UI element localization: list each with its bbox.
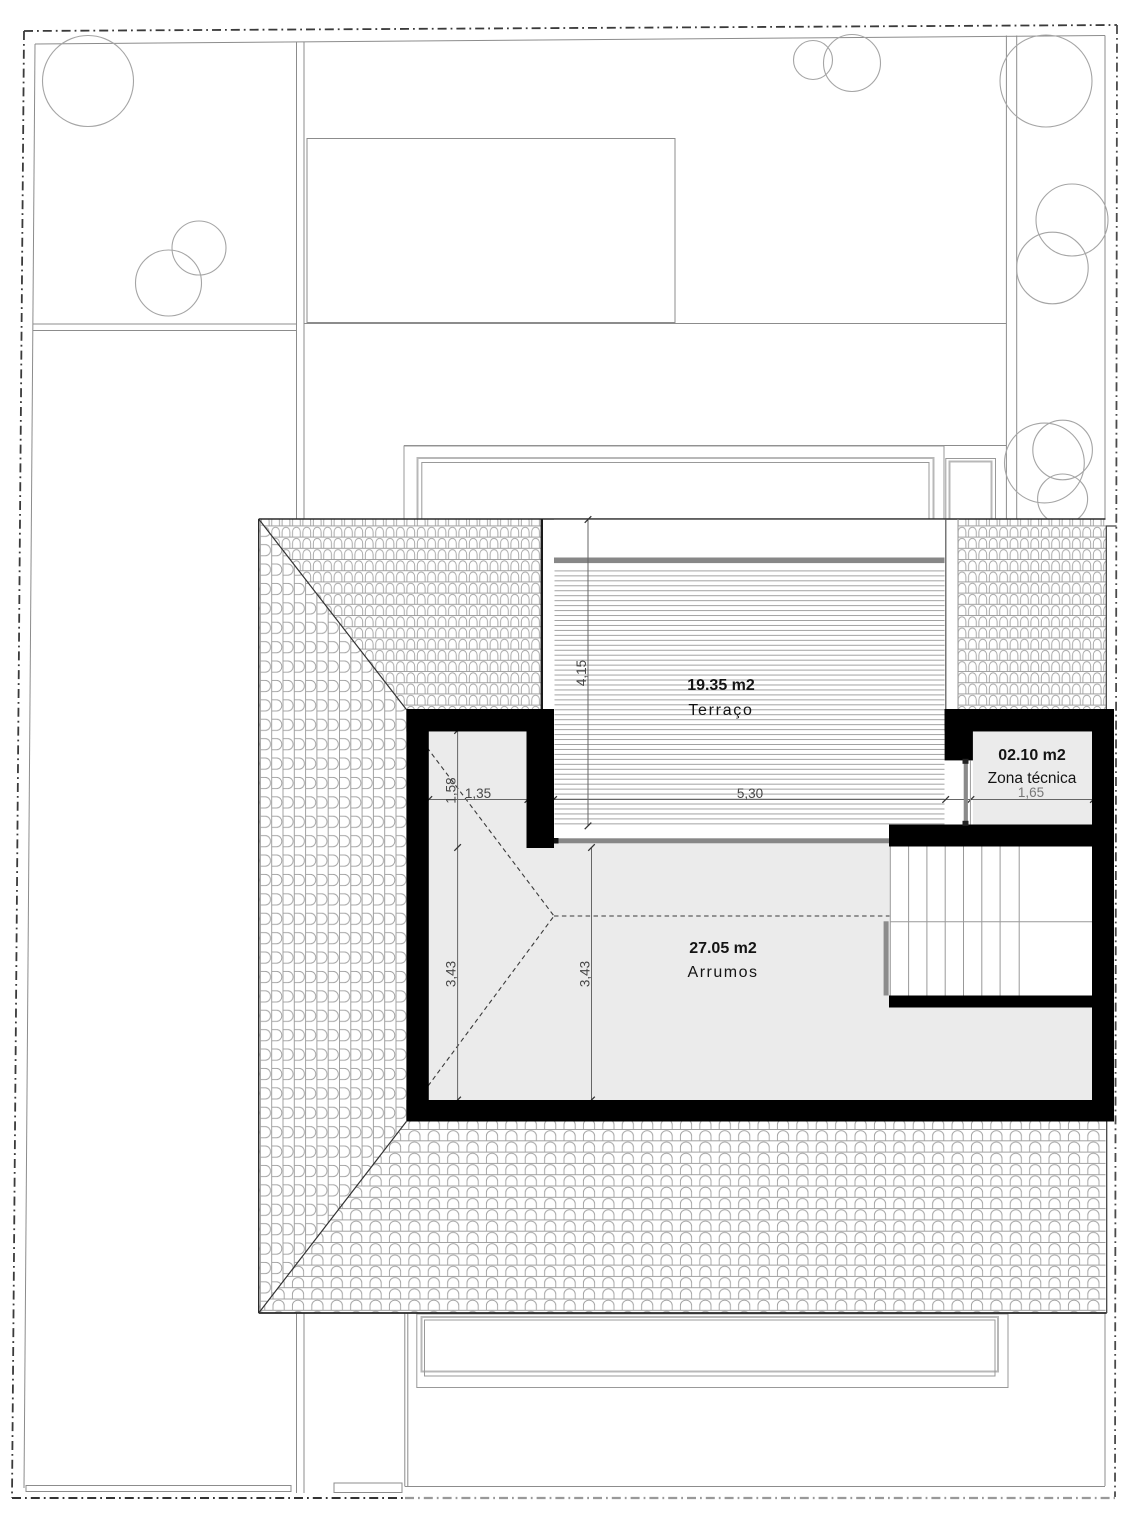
svg-text:4,15: 4,15 (574, 660, 589, 686)
svg-text:3,43: 3,43 (444, 961, 459, 987)
svg-text:19.35 m2: 19.35 m2 (687, 677, 755, 694)
svg-text:3,43: 3,43 (578, 961, 593, 987)
svg-text:1,35: 1,35 (465, 786, 491, 801)
svg-text:1,65: 1,65 (1018, 785, 1044, 800)
svg-text:5,30: 5,30 (737, 786, 763, 801)
svg-text:1,58: 1,58 (444, 777, 459, 803)
svg-text:27.05 m2: 27.05 m2 (689, 940, 757, 957)
svg-text:Arrumos: Arrumos (688, 964, 759, 981)
svg-text:Terraço: Terraço (688, 702, 753, 719)
svg-text:02.10 m2: 02.10 m2 (998, 747, 1066, 764)
